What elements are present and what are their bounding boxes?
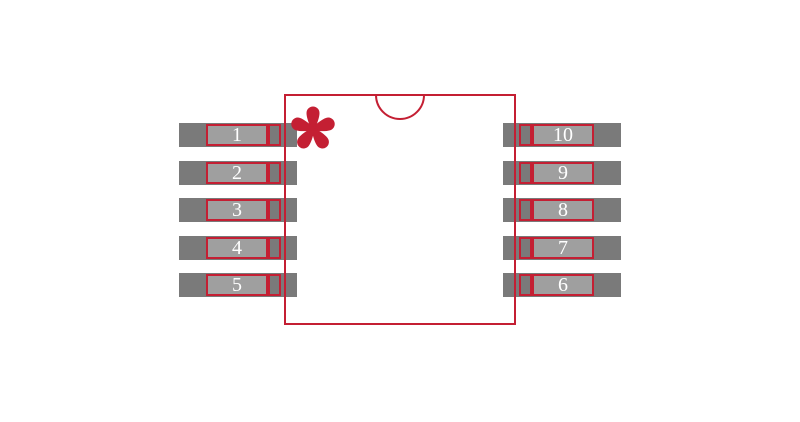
pad-row-pin9: 9	[503, 161, 621, 185]
pin1-asterisk-icon	[288, 104, 338, 154]
pin-number-label: 4	[232, 238, 242, 258]
pad-row-pin5: 5	[179, 273, 297, 297]
pad-row-pin8: 8	[503, 198, 621, 222]
lead-outline: 4	[206, 237, 268, 259]
pad-row-pin3: 3	[179, 198, 297, 222]
pin-number-label: 1	[232, 125, 242, 145]
pin-number-label: 9	[558, 163, 568, 183]
pin-number-label: 10	[553, 125, 573, 145]
pad-row-pin6: 6	[503, 273, 621, 297]
lead-heel-outline	[519, 124, 532, 146]
lead-heel-outline	[519, 237, 532, 259]
lead-outline: 5	[206, 274, 268, 296]
pin-number-label: 7	[558, 238, 568, 258]
pad-row-pin7: 7	[503, 236, 621, 260]
pad-row-pin10: 10	[503, 123, 621, 147]
lead-heel-outline	[519, 199, 532, 221]
pad-row-pin1: 1	[179, 123, 297, 147]
lead-outline: 10	[532, 124, 594, 146]
lead-outline: 9	[532, 162, 594, 184]
pad-row-pin4: 4	[179, 236, 297, 260]
lead-outline: 2	[206, 162, 268, 184]
lead-heel-outline	[268, 237, 281, 259]
lead-outline: 1	[206, 124, 268, 146]
lead-outline: 8	[532, 199, 594, 221]
lead-heel-outline	[268, 199, 281, 221]
lead-outline: 6	[532, 274, 594, 296]
lead-outline: 3	[206, 199, 268, 221]
footprint-diagram: 1 2 3 4 5 10	[0, 0, 800, 422]
lead-heel-outline	[268, 274, 281, 296]
lead-heel-outline	[268, 162, 281, 184]
pin-number-label: 5	[232, 275, 242, 295]
lead-outline: 7	[532, 237, 594, 259]
lead-heel-outline	[268, 124, 281, 146]
orientation-notch-icon	[374, 93, 426, 123]
pin-number-label: 8	[558, 200, 568, 220]
pad-row-pin2: 2	[179, 161, 297, 185]
lead-heel-outline	[519, 162, 532, 184]
pin-number-label: 3	[232, 200, 242, 220]
lead-heel-outline	[519, 274, 532, 296]
pin-number-label: 2	[232, 163, 242, 183]
pin-number-label: 6	[558, 275, 568, 295]
